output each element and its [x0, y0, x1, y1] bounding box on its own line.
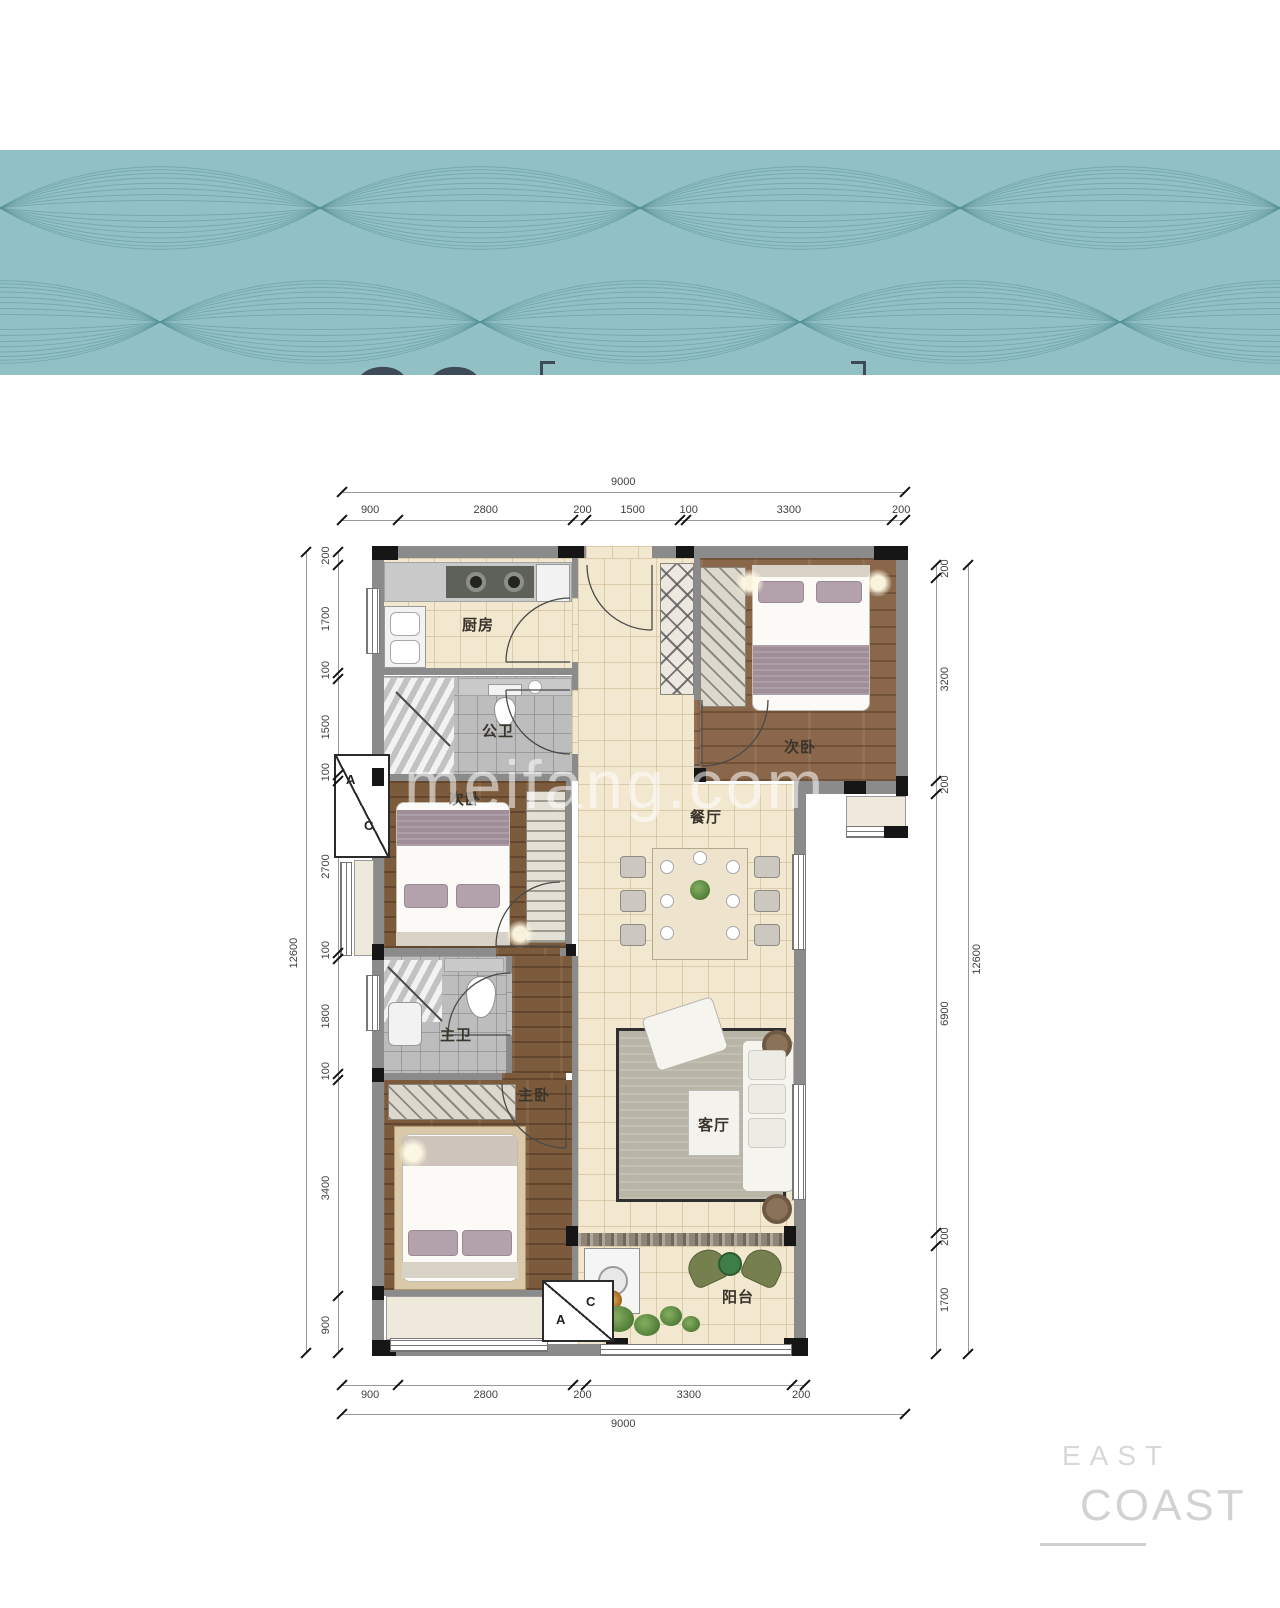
poster-page: 06 户型 三室两厅两卫 建 筑面积约 101 m2 套 内面积约 80 m2	[0, 0, 1280, 1608]
public-bath-label: 公卫	[470, 720, 526, 741]
master-bath-label: 主卫	[430, 1024, 482, 1045]
balcony-label: 阳台	[712, 1286, 764, 1307]
master-bedroom-label: 主卧	[508, 1084, 560, 1105]
living-label: 客厅	[688, 1114, 740, 1135]
kitchen-label: 厨房	[438, 614, 518, 635]
watermark: meifang.com	[404, 746, 826, 824]
